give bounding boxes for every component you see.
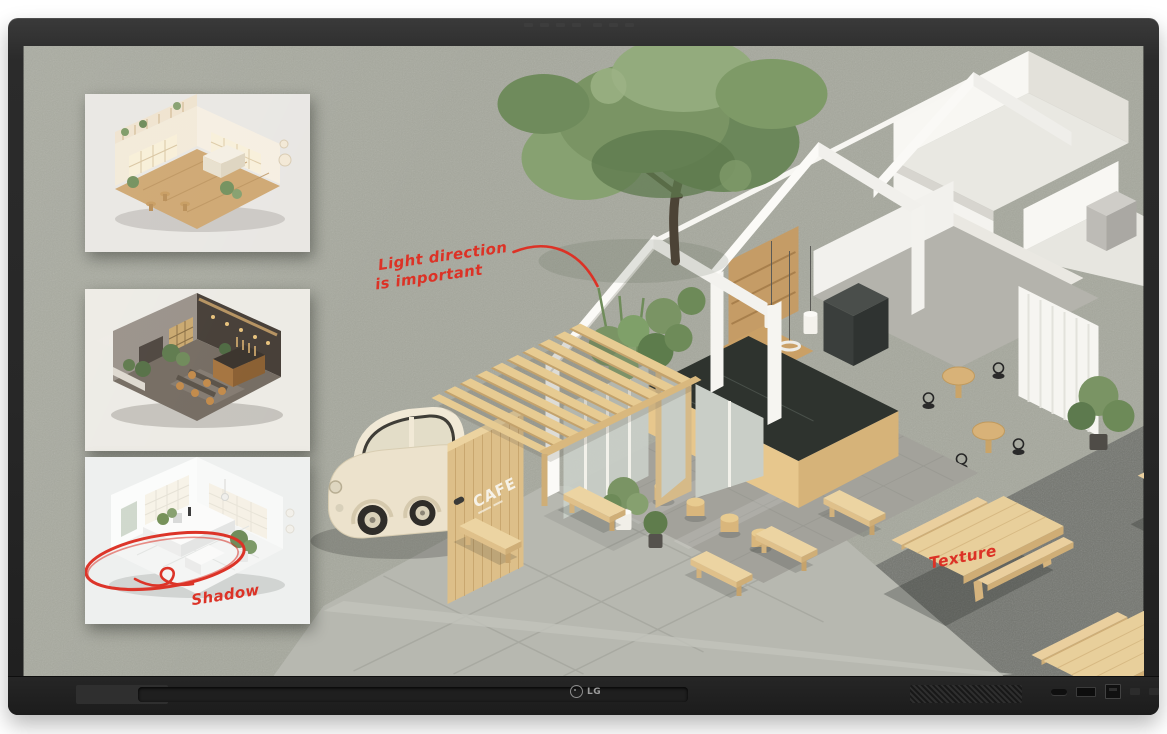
lg-logo-text: LG bbox=[587, 687, 601, 697]
product-photo-background: { "device": { "logo_text": "LG" }, "pale… bbox=[0, 0, 1167, 734]
lg-emblem-icon bbox=[570, 685, 583, 698]
bottom-bezel: LG bbox=[8, 676, 1159, 715]
port-label-icon bbox=[1130, 688, 1140, 695]
usb-port-icon bbox=[1076, 687, 1096, 697]
pen-tray bbox=[138, 687, 688, 702]
oval-slot-icon bbox=[1051, 689, 1067, 695]
touch-screen-canvas[interactable]: CAFE bbox=[23, 46, 1144, 676]
inset-image-white-kitchen[interactable]: Shadow bbox=[85, 457, 310, 624]
lg-logo: LG bbox=[570, 685, 601, 698]
top-vent-marks bbox=[524, 23, 581, 27]
inset-image-dark-lounge[interactable] bbox=[85, 289, 310, 451]
port-label-icon-2 bbox=[1149, 688, 1159, 695]
top-vent-marks-2 bbox=[593, 23, 634, 27]
inset-image-warm-cafe[interactable] bbox=[85, 94, 310, 252]
speaker-grille bbox=[910, 685, 1022, 703]
connector-icons bbox=[1051, 684, 1159, 699]
interactive-display: CAFE bbox=[8, 18, 1159, 715]
lan-port-icon bbox=[1105, 684, 1121, 699]
